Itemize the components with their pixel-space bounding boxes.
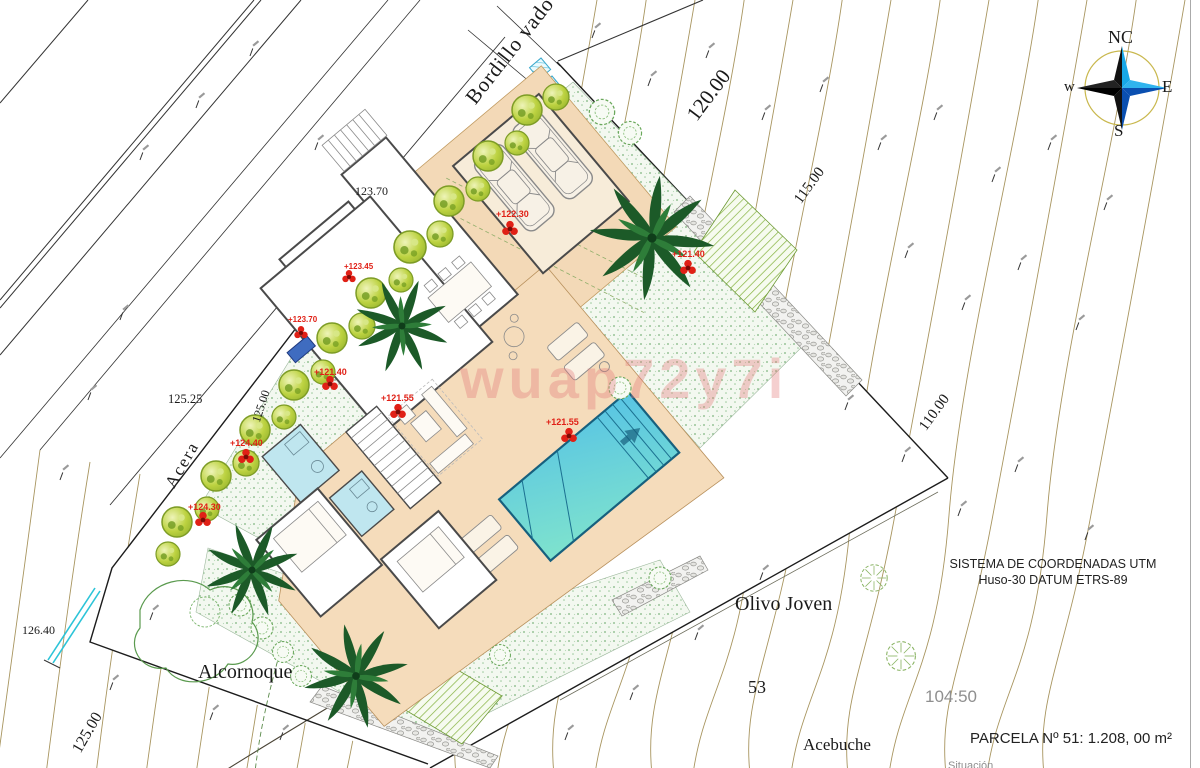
elevation-label: +121.40: [672, 250, 705, 259]
spot-label-126-40: 126.40: [22, 624, 55, 636]
spot-label-104-50: 104:50: [925, 688, 977, 705]
elevation-label: +123.45: [344, 263, 373, 271]
water-channel: [48, 588, 100, 663]
crs-line1: SISTEMA DE COORDENADAS UTM: [948, 556, 1158, 572]
compass-west-label: w: [1064, 80, 1075, 95]
site-plan: Bordillo vado 120.00 115.00 110.00 125.0…: [0, 0, 1200, 768]
watermark: wuap72y7i: [460, 346, 788, 411]
elevation-label: +121.40: [314, 368, 347, 377]
elevation-label: +121.55: [381, 394, 414, 403]
tree-label-53: 53: [748, 678, 766, 696]
compass-east-label: E: [1162, 78, 1172, 95]
elevation-label: +124.30: [188, 503, 221, 512]
elevation-label: +122.30: [496, 210, 529, 219]
olive-trees: [861, 565, 916, 671]
situacion-note: Situación: [948, 761, 993, 768]
elevation-label: +124.40: [230, 439, 263, 448]
parcel-note: PARCELA Nº 51: 1.208, 00 m²: [970, 731, 1172, 746]
channel-end-tick: [44, 660, 60, 668]
tree-label-olivo-joven: Olivo Joven: [735, 594, 832, 614]
elevation-label: +123.70: [288, 316, 317, 324]
compass-north-label: NC: [1108, 28, 1133, 46]
spot-label-125-25: 125.25: [168, 393, 202, 406]
compass-rose: [1077, 46, 1167, 130]
crs-note: SISTEMA DE COORDENADAS UTM Huso-30 DATUM…: [948, 556, 1158, 589]
compass-south-label: S: [1114, 122, 1123, 139]
spot-label-123-70: 123.70: [355, 185, 388, 197]
tree-label-alcornoque: Alcornoque: [198, 662, 292, 682]
crs-line2: Huso-30 DATUM ETRS-89: [948, 572, 1158, 588]
tree-label-acebuche: Acebuche: [803, 736, 871, 753]
elevation-label: +121.55: [546, 418, 579, 427]
